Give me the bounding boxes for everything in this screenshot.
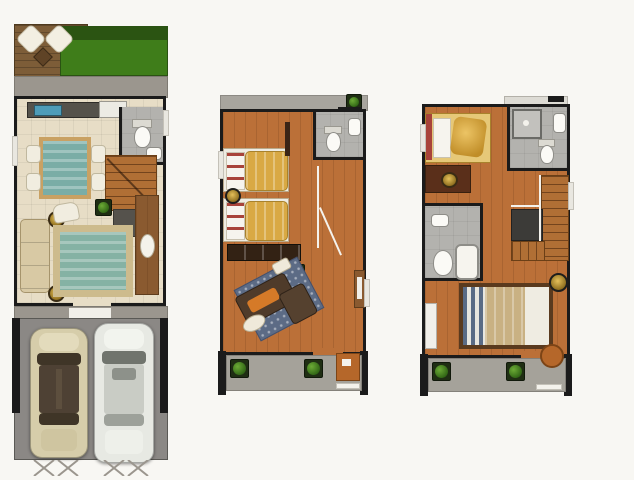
balcony-plant — [230, 359, 249, 378]
shower-stall — [512, 109, 542, 139]
car-windshield — [102, 351, 146, 364]
dining-chair — [26, 173, 41, 191]
bathtub — [455, 244, 479, 280]
single-bed — [223, 198, 289, 242]
toilet-icon — [134, 126, 151, 148]
toilet-icon — [326, 132, 341, 152]
desk-paper — [342, 359, 351, 366]
bed-pillow — [433, 118, 451, 158]
bed-sheet — [525, 287, 549, 345]
second-floor-interior — [220, 109, 366, 355]
car-sunroof — [112, 368, 136, 380]
dining-chair — [91, 173, 106, 191]
plan-ground-floor — [12, 18, 172, 478]
stair-plant — [95, 199, 112, 216]
vehicle-sedan-white — [94, 323, 154, 463]
desk-lamp — [441, 172, 458, 188]
shower-drain — [523, 120, 529, 126]
car-roof — [39, 365, 79, 413]
stair-flight-run — [511, 241, 545, 261]
car-roof-line — [56, 369, 62, 409]
sofa-cushion — [246, 287, 280, 314]
window — [568, 182, 574, 210]
window — [218, 151, 224, 179]
single-bed — [223, 148, 289, 192]
car-hood — [39, 333, 79, 351]
console-front — [357, 277, 362, 299]
stair-railing-angled — [319, 207, 342, 255]
car-trunk — [105, 430, 143, 454]
wall-tick — [548, 96, 564, 102]
toilet-icon — [540, 145, 554, 164]
wall-shelf — [425, 303, 437, 349]
bed-blanket — [245, 201, 288, 241]
gold-pillow — [450, 116, 488, 158]
car-windshield — [37, 353, 81, 365]
balcony-pier-left — [218, 351, 226, 395]
car-roof — [104, 364, 144, 414]
double-bed — [459, 283, 553, 349]
balcony-door-swing — [536, 384, 562, 390]
bed-pillow — [226, 202, 245, 240]
bed-blanket — [485, 287, 525, 345]
armchair — [52, 201, 81, 224]
window — [364, 279, 370, 307]
balcony-plant — [304, 359, 323, 378]
balcony-plant — [432, 362, 451, 381]
window — [163, 110, 169, 136]
balcony-desk — [336, 353, 360, 381]
staircase-zone — [507, 175, 567, 259]
car-hood — [104, 329, 144, 349]
dining-chair — [91, 145, 106, 163]
bed-headboard-striped — [463, 287, 485, 345]
window — [12, 136, 18, 166]
stair-railing — [511, 205, 541, 207]
kitchen-sink — [34, 105, 62, 116]
study-desk — [425, 165, 471, 193]
lavatory-icon — [431, 214, 449, 227]
third-floor-interior — [422, 104, 570, 358]
balcony-plant — [506, 362, 525, 381]
toilet-bath — [313, 112, 363, 160]
toilet-bath-3 — [425, 203, 483, 281]
balcony-door-swing — [336, 383, 360, 389]
round-nightstand — [225, 188, 241, 204]
car-rear-window — [39, 413, 79, 425]
gate-marks — [18, 460, 166, 476]
toilet-icon — [433, 250, 453, 276]
toilet-bath-2 — [507, 107, 567, 171]
sofa — [20, 219, 50, 293]
rear-patio — [14, 76, 168, 98]
stair-railing — [539, 175, 541, 241]
lawn — [60, 26, 168, 76]
plan-second-floor — [218, 93, 368, 395]
console-table — [135, 195, 159, 295]
dining-table — [39, 137, 91, 199]
bed-blanket — [245, 151, 288, 191]
vehicle-sedan-beige — [30, 328, 88, 458]
carport-pillar-left — [12, 318, 20, 413]
shrub-hedge — [61, 27, 167, 40]
round-table — [540, 344, 564, 368]
area-rug — [53, 225, 133, 297]
car-trunk — [41, 429, 77, 451]
floor-plans-image — [0, 0, 634, 480]
car-rear-window — [104, 414, 144, 426]
throw-pillow — [271, 257, 293, 276]
single-bed — [425, 113, 491, 163]
nightstand-lamp — [549, 273, 568, 292]
entry-door-mat — [69, 308, 111, 318]
lavatory-icon — [553, 113, 566, 133]
console-dish — [140, 234, 155, 258]
ground-house-interior — [14, 96, 166, 306]
balcony-pier-left — [420, 354, 428, 396]
dining-chair — [26, 145, 41, 163]
lavatory-icon — [348, 118, 361, 136]
plan-third-floor — [420, 96, 572, 396]
stair-flight-up — [541, 175, 569, 261]
bed-pillow — [226, 152, 245, 190]
headboard — [426, 114, 432, 160]
bedroom-door-slab — [285, 122, 290, 156]
window — [420, 124, 426, 152]
carport-pillar-right — [160, 318, 168, 413]
